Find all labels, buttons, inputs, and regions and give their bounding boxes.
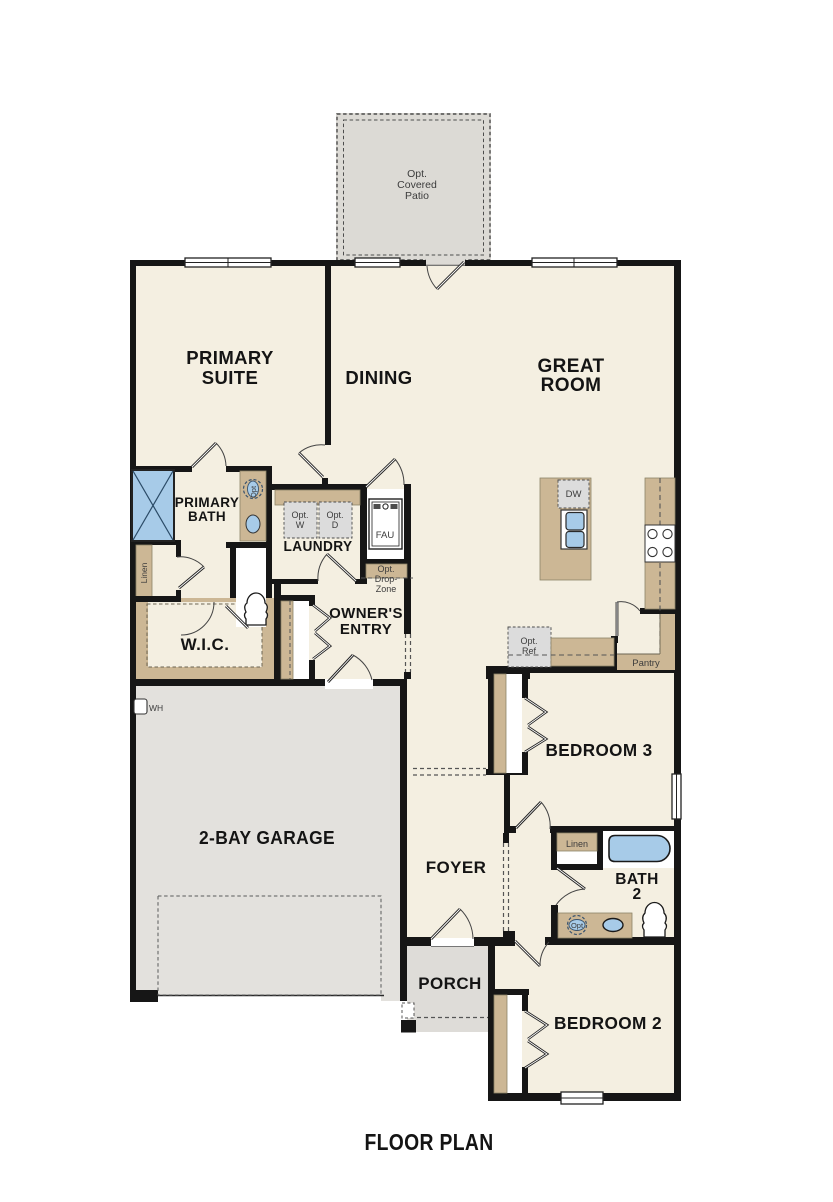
svg-text:ROOM: ROOM (541, 375, 602, 396)
svg-text:Opt.: Opt. (326, 510, 343, 520)
svg-text:Pantry: Pantry (632, 658, 660, 669)
svg-text:BATH: BATH (188, 509, 226, 524)
svg-text:Opt.: Opt. (520, 636, 537, 646)
svg-text:PRIMARY: PRIMARY (175, 495, 240, 510)
svg-text:Linen: Linen (139, 562, 149, 583)
svg-text:Opt.: Opt. (291, 510, 308, 520)
svg-text:BEDROOM 2: BEDROOM 2 (554, 1013, 662, 1033)
svg-text:DW: DW (566, 489, 582, 500)
svg-text:W.I.C.: W.I.C. (181, 635, 230, 654)
svg-text:Zone: Zone (376, 584, 397, 594)
svg-text:PORCH: PORCH (418, 974, 481, 993)
svg-text:Drop-: Drop- (375, 574, 398, 584)
svg-text:WH: WH (149, 703, 163, 713)
svg-text:W: W (296, 520, 305, 530)
svg-text:LAUNDRY: LAUNDRY (284, 539, 353, 555)
svg-text:BEDROOM 3: BEDROOM 3 (546, 740, 653, 760)
svg-text:PRIMARY: PRIMARY (186, 347, 274, 368)
svg-text:D: D (332, 520, 339, 530)
svg-text:2-BAY GARAGE: 2-BAY GARAGE (199, 827, 335, 848)
svg-text:Opt: Opt (571, 921, 584, 930)
svg-text:Linen: Linen (566, 839, 588, 849)
svg-text:DINING: DINING (345, 367, 412, 388)
svg-text:GREAT: GREAT (537, 356, 604, 377)
svg-text:Opt: Opt (249, 485, 258, 498)
svg-text:SUITE: SUITE (202, 367, 258, 388)
svg-text:Patio: Patio (405, 190, 429, 202)
svg-text:OWNER'S: OWNER'S (329, 605, 403, 622)
svg-text:2: 2 (632, 886, 641, 903)
svg-text:FLOOR PLAN: FLOOR PLAN (365, 1129, 494, 1155)
svg-text:FOYER: FOYER (426, 858, 487, 877)
svg-text:ENTRY: ENTRY (340, 621, 392, 638)
svg-text:Opt.: Opt. (377, 564, 394, 574)
svg-text:FAU: FAU (376, 530, 395, 541)
